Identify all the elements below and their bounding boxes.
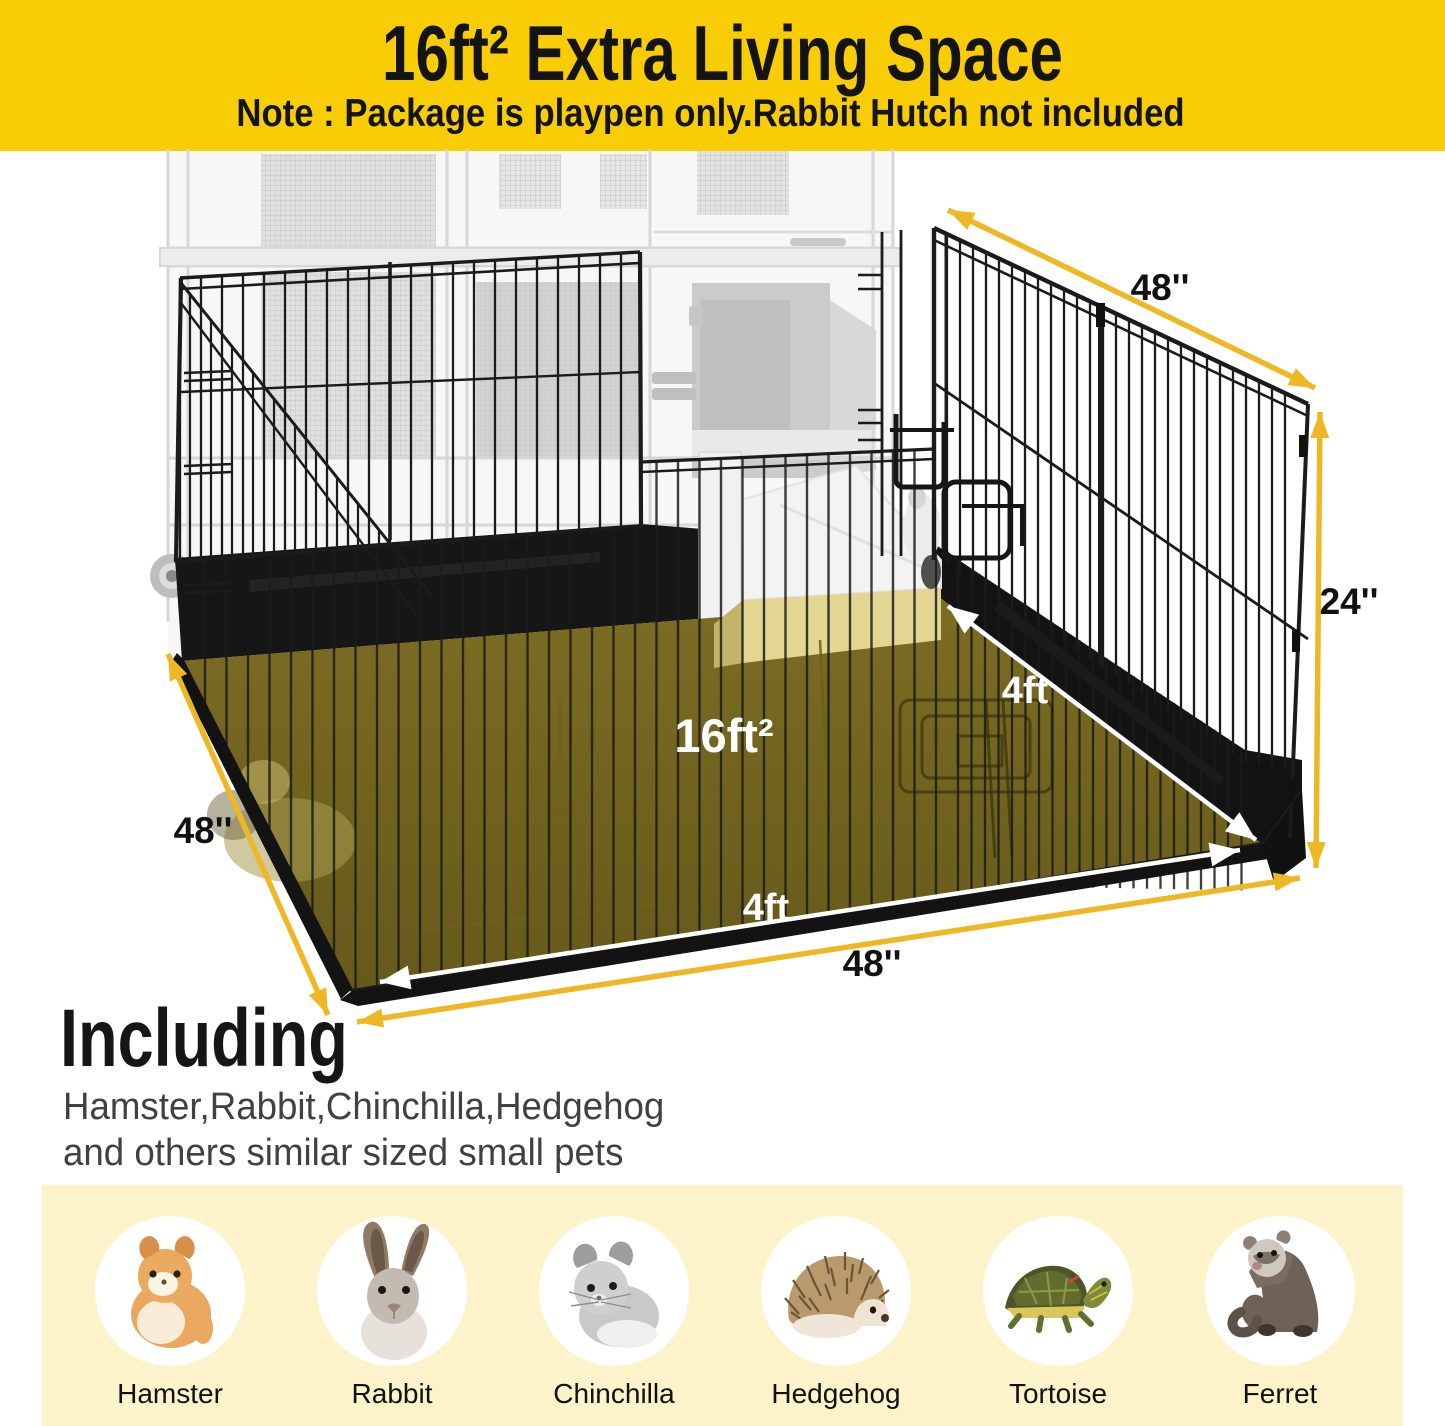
svg-text:4ft: 4ft <box>743 887 790 929</box>
svg-text:48'': 48'' <box>843 943 902 984</box>
svg-text:4ft: 4ft <box>1002 670 1049 712</box>
svg-text:24'': 24'' <box>1320 581 1379 622</box>
svg-text:16ft²: 16ft² <box>674 709 773 762</box>
svg-text:48'': 48'' <box>1131 267 1190 308</box>
svg-text:48'': 48'' <box>174 810 233 851</box>
